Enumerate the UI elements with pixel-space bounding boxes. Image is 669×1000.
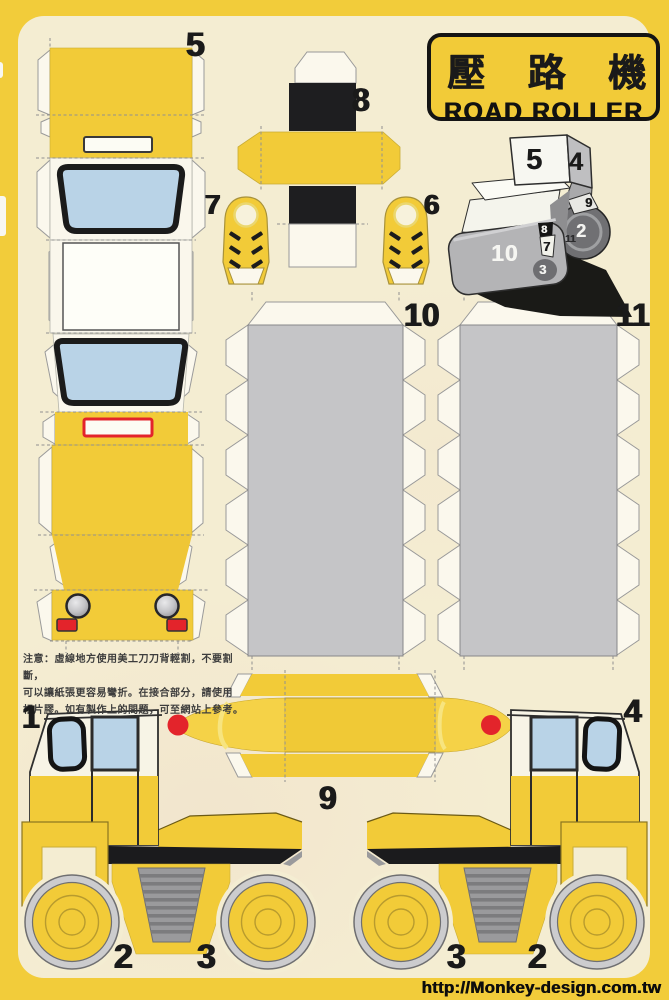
ref-label-4: 4 (569, 150, 583, 175)
papercraft-sheet: 壓 路 機 ROAD ROLLER 注意：虛線地方使用美工刀刀背輕割，不要割斷，… (0, 0, 669, 1000)
part-label-7: 7 (205, 191, 221, 219)
ref-label-2: 2 (576, 222, 586, 240)
part-6-bracket (383, 197, 429, 284)
part-label-4: 4 (624, 695, 642, 727)
part-label-8: 8 (352, 84, 370, 116)
ref-label-10: 10 (491, 242, 519, 265)
instructions-line: 注意：虛線地方使用美工刀刀背輕割，不要割斷， (23, 651, 245, 685)
headlight (67, 595, 90, 618)
windshield (57, 341, 185, 403)
title-chinese: 壓 路 機 (431, 42, 656, 97)
website-url: http://Monkey-design.com.tw (421, 978, 661, 998)
part-label-9: 9 (319, 782, 337, 814)
part-label-2-right: 2 (528, 940, 547, 974)
part-11-roller-wrap (438, 292, 639, 670)
instructions-line: 可以讓紙張更容易彎折。在接合部分，請使用 (23, 685, 245, 702)
part-label-11: 11 (616, 299, 650, 331)
ref-label-9: 9 (585, 196, 592, 209)
instructions-note: 注意：虛線地方使用美工刀刀背輕割，不要割斷， 可以讓紙張更容易彎折。在接合部分，… (23, 651, 245, 719)
ref-label-8: 8 (541, 225, 547, 236)
ref-label-5: 5 (526, 146, 542, 175)
part-label-3-left: 3 (197, 940, 216, 974)
red-cap (481, 715, 501, 735)
part-5-cab-strip (34, 38, 208, 653)
part-label-5: 5 (186, 28, 205, 62)
part-label-2-left: 2 (114, 940, 133, 974)
instructions-line: 相片膠。如有製作上的問題，可至網站上參考。 (23, 702, 245, 719)
part-label-1: 1 (22, 701, 40, 733)
part-label-10: 10 (404, 299, 440, 331)
ref-label-11: 11 (565, 235, 576, 245)
title-box: 壓 路 機 ROAD ROLLER (427, 33, 660, 121)
ref-label-7: 7 (543, 240, 550, 253)
part-label-3-right: 3 (447, 940, 466, 974)
ref-label-3: 3 (539, 263, 546, 276)
cab-rear-window (60, 167, 182, 231)
part-label-6: 6 (424, 191, 440, 219)
part-7-bracket (223, 197, 269, 284)
title-english: ROAD ROLLER (431, 98, 656, 127)
headlight (156, 595, 179, 618)
part-10-roller-wrap (226, 292, 425, 670)
